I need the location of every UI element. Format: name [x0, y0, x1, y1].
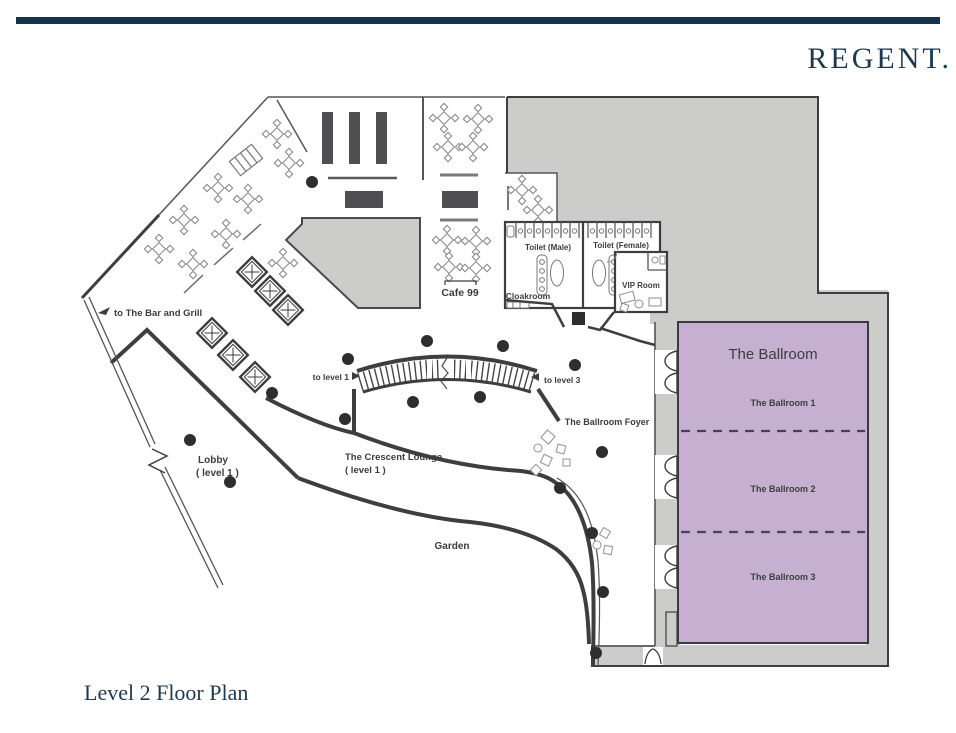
page-title: Level 2 Floor Plan	[84, 680, 248, 706]
buffet-counters	[322, 112, 387, 208]
ballroom-area	[678, 322, 868, 643]
label-to-level-3: to level 3	[544, 375, 581, 385]
floor-plan-svg: to The Bar and Grill Cafe 99 Toilet (Mal…	[0, 0, 956, 733]
label-lobby-level: ( level 1 )	[196, 468, 239, 479]
elevator-bank	[197, 257, 303, 392]
label-lobby: Lobby	[198, 455, 228, 466]
label-ballroom2: The Ballroom 2	[750, 484, 815, 494]
label-to-level-1: to level 1	[313, 372, 350, 382]
label-foyer: The Ballroom Foyer	[565, 417, 650, 427]
crescent-walls	[84, 297, 600, 666]
label-crescent: The Crescent Lounge	[345, 452, 442, 463]
label-ballroom1: The Ballroom 1	[750, 398, 815, 408]
label-toilet-male: Toilet (Male)	[525, 243, 571, 252]
label-crescent-level: ( level 1 )	[345, 465, 386, 476]
label-garden: Garden	[434, 541, 469, 552]
grand-staircase	[352, 352, 539, 392]
label-vip: VIP Room	[622, 281, 660, 290]
label-bar-grill: to The Bar and Grill	[114, 308, 202, 319]
label-cloakroom: Cloakroom	[506, 291, 551, 301]
label-ballroom: The Ballroom	[728, 346, 817, 363]
page: REGENT.	[0, 0, 956, 733]
label-toilet-female: Toilet (Female)	[593, 241, 649, 250]
service-notch	[505, 173, 557, 222]
label-cafe: Cafe 99	[441, 287, 479, 299]
label-ballroom3: The Ballroom 3	[750, 572, 815, 582]
